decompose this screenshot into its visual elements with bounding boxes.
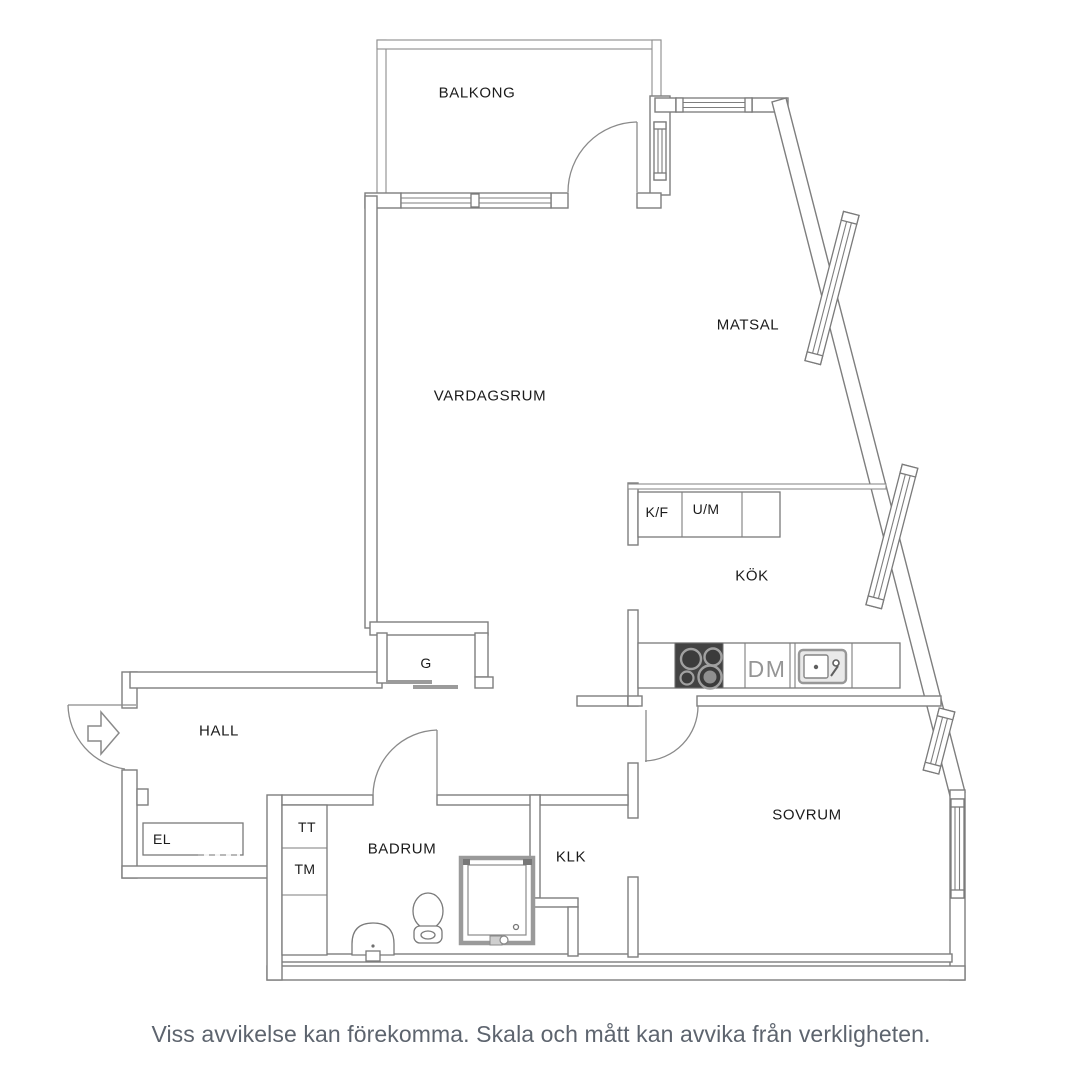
label-el-cabinet: EL bbox=[153, 831, 171, 847]
wall-balcony-top bbox=[377, 40, 661, 49]
wall-top-c bbox=[637, 193, 661, 208]
wall-entry-lower bbox=[122, 770, 137, 878]
window-matsal-north bbox=[676, 98, 752, 112]
floor-plan-page: BALKONG MATSAL VARDAGSRUM KÖK HALL BADRU… bbox=[0, 0, 1082, 1080]
wall-sovrum-west-upper bbox=[628, 763, 638, 818]
window-pillar bbox=[654, 122, 666, 180]
window-sovrum-east bbox=[951, 799, 964, 898]
disclaimer-text: Viss avvikelse kan förekomma. Skala och … bbox=[0, 1021, 1082, 1048]
entry-arrow-icon bbox=[88, 712, 119, 754]
wall-klk-step-h bbox=[530, 898, 578, 907]
wall-klk-top bbox=[540, 795, 628, 805]
wall-vardagsrum-bottom bbox=[370, 622, 488, 635]
wall-kitchen-stub-lower bbox=[628, 610, 638, 706]
doors bbox=[68, 122, 698, 795]
room-label-klk: KLK bbox=[556, 849, 586, 866]
wall-klk-step-v bbox=[568, 907, 578, 956]
kok-sovrum-door bbox=[645, 706, 698, 762]
kitchen-north-line bbox=[628, 484, 886, 489]
room-label-kok: KÖK bbox=[735, 567, 768, 585]
washbasin-icon bbox=[352, 923, 394, 961]
badrum-door bbox=[373, 730, 437, 795]
wall-badrum-top-b bbox=[437, 795, 540, 805]
balcony-door bbox=[568, 122, 637, 192]
floor-plan-drawing: BALKONG MATSAL VARDAGSRUM KÖK HALL BADRU… bbox=[0, 0, 1082, 1080]
window-balcony-south bbox=[401, 193, 551, 208]
wall-hall-bottom bbox=[122, 866, 282, 878]
label-tt: TT bbox=[298, 819, 316, 835]
g-closet-sliding-doors bbox=[386, 680, 458, 689]
label-dm-dishwasher: DM bbox=[748, 656, 787, 682]
label-tm: TM bbox=[294, 861, 315, 877]
wall-vardagsrum-left bbox=[365, 196, 377, 628]
stove-icon bbox=[675, 643, 723, 689]
wall-matsal-top-a bbox=[655, 98, 676, 112]
wall-bottom-outer bbox=[267, 966, 965, 980]
label-g-closet: G bbox=[420, 655, 431, 671]
wall-sovrum-west-lower bbox=[628, 877, 638, 957]
room-label-badrum: BADRUM bbox=[368, 841, 437, 858]
wall-balcony-right bbox=[652, 40, 661, 100]
wall-g-right bbox=[475, 633, 488, 677]
bathroom-fittings bbox=[143, 805, 533, 961]
label-kf-fridge-freezer: K/F bbox=[646, 504, 669, 520]
wall-g-left bbox=[377, 633, 387, 683]
wall-diagonal-east bbox=[772, 98, 965, 796]
walls bbox=[122, 40, 965, 980]
wall-kitchen-stub-upper bbox=[628, 483, 638, 545]
shower-icon bbox=[461, 858, 533, 945]
wall-kok-sovrum-b bbox=[697, 696, 941, 706]
wall-balcony-left bbox=[377, 40, 386, 196]
room-label-balkong: BALKONG bbox=[439, 85, 516, 102]
wall-badrum-top-a bbox=[282, 795, 373, 805]
wall-hall-top bbox=[130, 672, 382, 688]
room-label-sovrum: SOVRUM bbox=[772, 807, 841, 824]
room-label-matsal: MATSAL bbox=[717, 317, 780, 334]
wall-top-b bbox=[551, 193, 568, 208]
wall-badrum-left bbox=[267, 795, 282, 980]
room-label-vardagsrum: VARDAGSRUM bbox=[434, 388, 546, 405]
wall-g-foot bbox=[475, 677, 493, 688]
wall-entry-notch bbox=[137, 789, 148, 805]
room-label-hall: HALL bbox=[199, 723, 239, 740]
toilet-icon bbox=[413, 893, 443, 943]
wall-kok-sovrum-a bbox=[628, 696, 642, 706]
label-um-oven-micro: U/M bbox=[693, 501, 720, 517]
sink-icon bbox=[799, 650, 846, 683]
wall-hall-ne bbox=[577, 696, 628, 706]
